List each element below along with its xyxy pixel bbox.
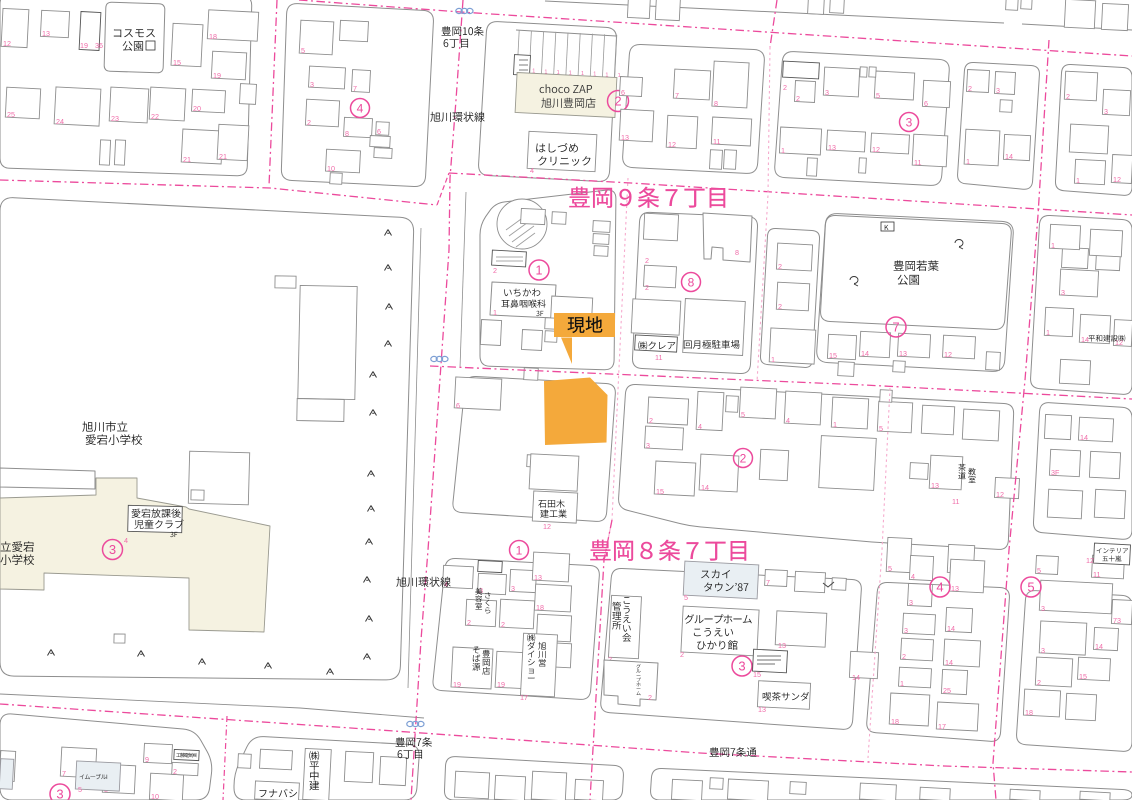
svg-text:15: 15: [173, 58, 181, 67]
svg-text:13: 13: [534, 573, 542, 582]
svg-text:4: 4: [357, 101, 364, 115]
svg-text:2: 2: [645, 256, 649, 265]
svg-text:12: 12: [1113, 175, 1121, 184]
svg-text:8: 8: [735, 248, 739, 257]
svg-text:15: 15: [829, 351, 837, 360]
svg-text:17: 17: [520, 693, 528, 702]
svg-text:1: 1: [833, 420, 837, 429]
svg-text:17: 17: [938, 722, 946, 731]
svg-text:3: 3: [825, 88, 829, 97]
svg-text:2: 2: [796, 94, 800, 103]
svg-text:11: 11: [952, 497, 959, 506]
svg-text:6: 6: [924, 99, 928, 108]
svg-text:12: 12: [3, 39, 11, 48]
svg-text:12: 12: [668, 140, 676, 149]
svg-text:14: 14: [1005, 152, 1013, 161]
svg-text:6: 6: [621, 88, 625, 97]
svg-text:3: 3: [1041, 604, 1045, 613]
svg-text:12: 12: [543, 522, 551, 531]
svg-text:11: 11: [713, 137, 720, 146]
svg-text:2: 2: [307, 118, 311, 127]
svg-text:1: 1: [781, 146, 785, 155]
svg-text:1: 1: [516, 543, 523, 557]
svg-text:11: 11: [655, 353, 662, 362]
svg-text:11: 11: [1093, 570, 1100, 579]
svg-text:3: 3: [1041, 646, 1045, 655]
svg-text:2: 2: [1066, 92, 1070, 101]
svg-text:2: 2: [173, 767, 177, 776]
svg-text:5: 5: [879, 424, 883, 433]
svg-text:2: 2: [1037, 678, 1041, 687]
svg-text:14: 14: [852, 673, 860, 682]
svg-text:2: 2: [645, 283, 649, 292]
svg-text:15: 15: [753, 670, 761, 679]
svg-text:4: 4: [786, 416, 790, 425]
svg-text:13: 13: [931, 481, 939, 490]
svg-text:12: 12: [944, 350, 952, 359]
svg-text:2: 2: [778, 302, 782, 311]
svg-text:14: 14: [861, 349, 869, 358]
svg-text:11: 11: [914, 158, 921, 167]
svg-text:23: 23: [111, 114, 119, 123]
svg-text:19: 19: [453, 680, 461, 689]
svg-text:22: 22: [151, 112, 159, 121]
svg-text:3: 3: [1061, 288, 1065, 297]
svg-text:6: 6: [377, 127, 381, 136]
svg-text:1: 1: [771, 355, 775, 364]
svg-text:25: 25: [943, 686, 951, 695]
svg-text:14: 14: [947, 624, 955, 633]
svg-text:12: 12: [1086, 556, 1094, 565]
svg-text:1: 1: [536, 264, 543, 278]
svg-text:2: 2: [740, 451, 747, 465]
svg-text:24: 24: [56, 117, 64, 126]
svg-text:5: 5: [684, 593, 688, 602]
svg-text:15: 15: [656, 487, 664, 496]
svg-text:3: 3: [1104, 107, 1108, 116]
svg-text:13: 13: [828, 143, 836, 152]
svg-text:3: 3: [511, 584, 515, 593]
svg-text:7: 7: [766, 578, 770, 587]
svg-text:2: 2: [648, 693, 652, 702]
svg-text:12: 12: [996, 490, 1004, 499]
svg-text:2: 2: [778, 262, 782, 271]
svg-text:14: 14: [701, 483, 709, 492]
svg-text:1: 1: [1051, 241, 1055, 250]
svg-text:21: 21: [219, 152, 227, 161]
svg-text:1: 1: [1046, 328, 1050, 337]
svg-text:21: 21: [183, 155, 191, 164]
svg-text:14: 14: [1095, 642, 1103, 651]
svg-text:4: 4: [911, 572, 915, 581]
svg-text:7: 7: [353, 84, 357, 93]
svg-text:13: 13: [621, 133, 629, 142]
svg-text:3: 3: [909, 598, 913, 607]
svg-text:19: 19: [497, 680, 505, 689]
svg-text:13: 13: [899, 349, 907, 358]
svg-text:1: 1: [493, 308, 497, 317]
svg-text:6: 6: [456, 401, 460, 410]
svg-text:9: 9: [145, 755, 149, 764]
svg-text:4: 4: [698, 422, 702, 431]
svg-text:13: 13: [951, 584, 959, 593]
svg-text:8: 8: [714, 99, 718, 108]
svg-text:5: 5: [78, 785, 82, 794]
svg-text:15: 15: [1079, 672, 1087, 681]
svg-text:3: 3: [904, 626, 908, 635]
svg-text:5: 5: [1037, 566, 1041, 575]
svg-text:1: 1: [900, 679, 904, 688]
svg-text:18: 18: [536, 603, 544, 612]
svg-text:14: 14: [1080, 433, 1088, 442]
svg-text:3: 3: [56, 787, 63, 800]
svg-text:2: 2: [493, 266, 497, 275]
svg-text:3F: 3F: [1051, 468, 1060, 477]
svg-text:3: 3: [738, 659, 745, 674]
svg-text:14: 14: [1081, 335, 1089, 344]
svg-text:1: 1: [1076, 176, 1080, 185]
svg-text:12: 12: [872, 145, 880, 154]
svg-text:7: 7: [62, 769, 66, 778]
svg-text:2: 2: [968, 84, 972, 93]
svg-text:18: 18: [891, 717, 899, 726]
svg-text:73: 73: [1113, 616, 1121, 625]
svg-text:10: 10: [327, 164, 335, 173]
svg-text:20: 20: [193, 104, 201, 113]
svg-text:4: 4: [124, 536, 128, 545]
svg-text:18: 18: [1025, 708, 1033, 717]
svg-text:5: 5: [1027, 580, 1034, 595]
svg-text:19: 19: [80, 41, 88, 50]
svg-text:2: 2: [680, 650, 684, 659]
svg-text:3: 3: [310, 80, 314, 89]
svg-text:4: 4: [936, 580, 943, 595]
svg-text:2: 2: [467, 618, 471, 627]
svg-text:3: 3: [906, 115, 913, 129]
svg-text:25: 25: [7, 110, 15, 119]
svg-text:5: 5: [301, 46, 305, 55]
svg-text:5: 5: [741, 410, 745, 419]
svg-text:3: 3: [109, 542, 116, 557]
svg-text:8: 8: [688, 275, 695, 289]
svg-text:19: 19: [213, 71, 221, 80]
svg-text:2: 2: [783, 83, 787, 92]
svg-text:36: 36: [95, 41, 103, 50]
svg-text:5: 5: [888, 564, 892, 573]
svg-text:18: 18: [209, 32, 217, 41]
svg-text:2: 2: [649, 416, 653, 425]
svg-text:13: 13: [42, 29, 50, 38]
svg-text:7: 7: [675, 91, 679, 100]
svg-text:14: 14: [945, 658, 953, 667]
svg-text:3: 3: [646, 441, 650, 450]
svg-text:7: 7: [892, 320, 899, 335]
svg-text:10: 10: [151, 792, 159, 800]
svg-text:8: 8: [345, 129, 349, 138]
svg-text:2: 2: [902, 652, 906, 661]
svg-text:3: 3: [996, 86, 1000, 95]
svg-text:5: 5: [876, 91, 880, 100]
svg-text:1: 1: [966, 157, 970, 166]
svg-text:2: 2: [501, 620, 505, 629]
svg-text:4: 4: [530, 166, 534, 175]
svg-text:13: 13: [778, 641, 786, 650]
svg-text:13: 13: [758, 705, 766, 714]
